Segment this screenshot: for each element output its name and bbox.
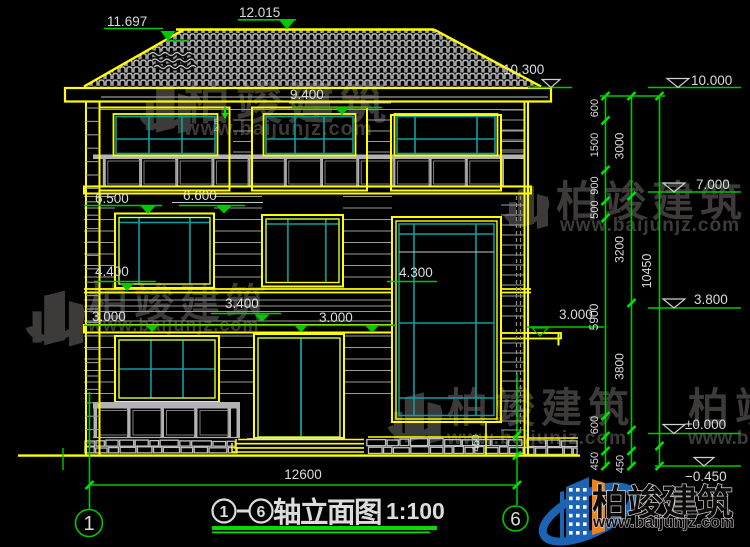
svg-text:9.400: 9.400 [290,87,324,102]
svg-text:12.015: 12.015 [239,5,280,20]
svg-text:11.697: 11.697 [107,14,147,29]
svg-text:10450: 10450 [640,254,654,289]
svg-text:450: 450 [615,455,627,473]
svg-text:轴立面图: 轴立面图 [273,496,381,529]
svg-text:1: 1 [83,513,94,535]
svg-text:3.000: 3.000 [92,309,126,324]
svg-text:3.400: 3.400 [225,296,259,311]
svg-text:B: B [214,119,219,126]
svg-text:±0.000: ±0.000 [685,417,726,432]
svg-text:6: 6 [510,510,521,531]
svg-text:10.000: 10.000 [691,73,732,88]
svg-text:1:100: 1:100 [386,498,445,524]
svg-text:3.800: 3.800 [694,292,728,307]
svg-text:600: 600 [589,99,601,117]
svg-text:5900: 5900 [587,303,601,330]
svg-text:450: 450 [589,452,601,470]
svg-text:4: 4 [214,127,218,134]
svg-text:6: 6 [257,504,266,521]
svg-text:www.baijunjz.com: www.baijunjz.com [592,514,735,531]
svg-text:450: 450 [470,434,482,452]
svg-text:6.500: 6.500 [95,191,129,206]
svg-text:900: 900 [589,176,601,194]
svg-text:6.600: 6.600 [183,188,217,203]
svg-text:500: 500 [589,200,601,218]
svg-text:3200: 3200 [613,236,627,263]
svg-text:3.000: 3.000 [319,310,353,325]
svg-text:1500: 1500 [589,133,601,157]
svg-text:7.000: 7.000 [696,177,730,192]
svg-text:600: 600 [589,416,601,434]
svg-text:www.baijunjz.com: www.baijunjz.com [183,118,373,140]
svg-text:4.400: 4.400 [95,264,129,279]
svg-text:4.300: 4.300 [399,265,433,280]
svg-text:www.baijunjz.com: www.baijunjz.com [559,215,740,236]
svg-text:12600: 12600 [284,467,322,482]
svg-text:10.300: 10.300 [503,62,544,77]
svg-text:3000: 3000 [613,132,627,159]
svg-text:1: 1 [220,504,229,521]
svg-text:3800: 3800 [613,353,627,380]
